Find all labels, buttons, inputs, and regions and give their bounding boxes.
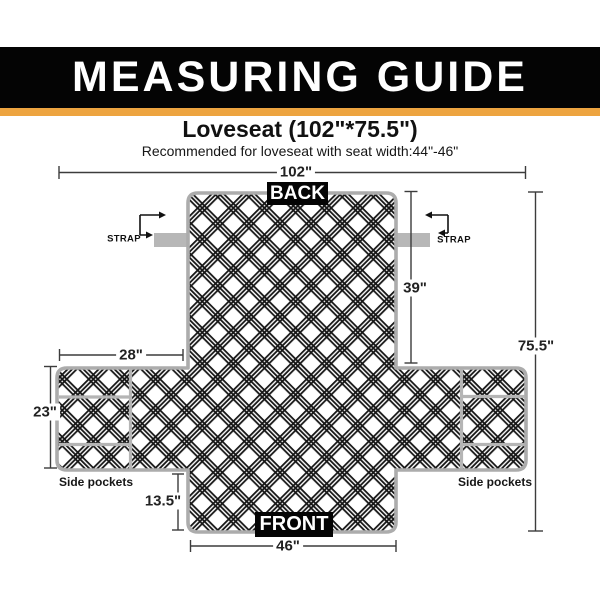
strap-label-right: STRAP [437,235,471,246]
front-tag: FRONT [255,512,333,537]
side-pockets-label-right: Side pockets [458,475,532,489]
strap-arrow-right-icon [425,212,448,237]
dim-label-arm-height: 23" [30,404,60,421]
dim-label-overall-height: 75.5" [515,338,557,355]
strap-left-shape [154,233,190,247]
dim-label-back-height: 39" [400,280,430,297]
dim-label-arm-width: 28" [116,347,146,364]
dim-label-front-skirt: 13.5" [142,493,184,510]
dim-label-front-width: 46" [273,538,303,555]
dim-label-overall-width: 102" [277,164,315,181]
dim-line-back-height [405,192,418,364]
strap-label-left: STRAP [107,234,141,245]
back-tag: BACK [267,182,328,205]
strap-right-shape [394,233,430,247]
sofa-cover-diagram [0,0,600,600]
side-pockets-label-left: Side pockets [59,475,133,489]
measuring-guide-page: MEASURING GUIDE Loveseat (102"*75.5") Re… [0,0,600,600]
